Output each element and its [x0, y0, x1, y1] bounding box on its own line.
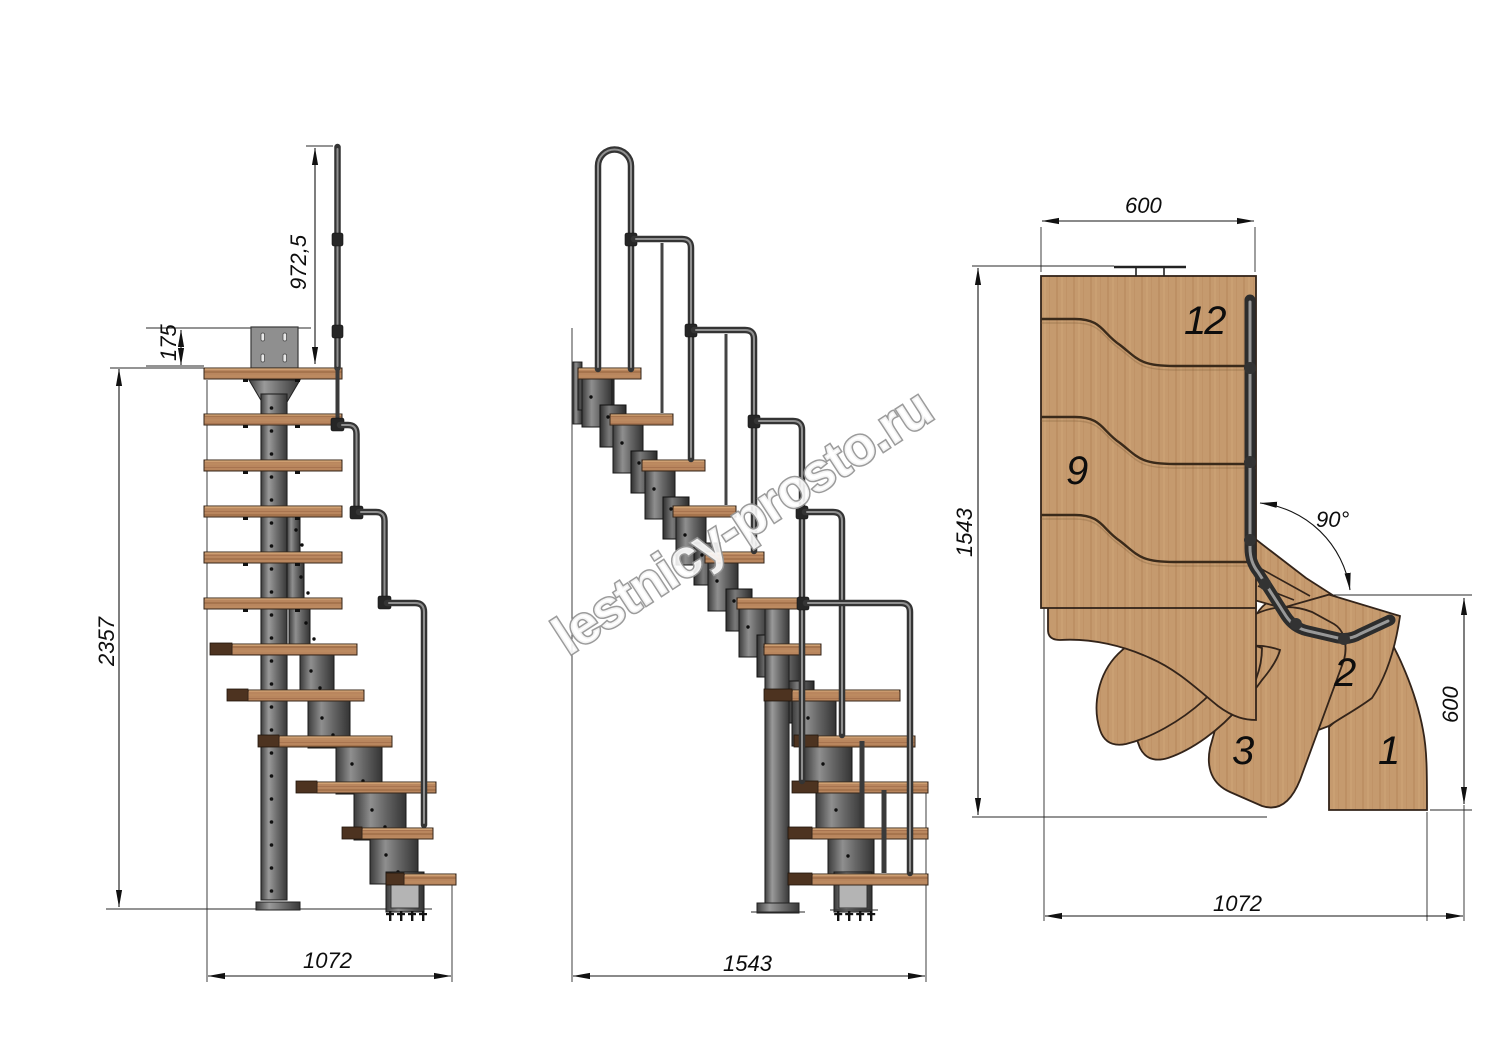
svg-text:90°: 90° [1316, 507, 1349, 532]
svg-text:1072: 1072 [303, 948, 352, 973]
svg-text:2: 2 [1333, 651, 1356, 695]
svg-text:1543: 1543 [723, 951, 773, 976]
svg-text:9: 9 [1066, 449, 1088, 493]
svg-text:600: 600 [1125, 193, 1162, 218]
svg-text:175: 175 [156, 324, 181, 361]
svg-text:3: 3 [1232, 729, 1254, 773]
svg-text:1072: 1072 [1213, 891, 1262, 916]
svg-text:972,5: 972,5 [286, 234, 311, 290]
svg-text:2357: 2357 [94, 616, 119, 667]
svg-text:12: 12 [1184, 299, 1226, 343]
svg-text:1543: 1543 [952, 507, 977, 557]
svg-text:1: 1 [1378, 729, 1398, 773]
svg-text:600: 600 [1438, 686, 1463, 723]
